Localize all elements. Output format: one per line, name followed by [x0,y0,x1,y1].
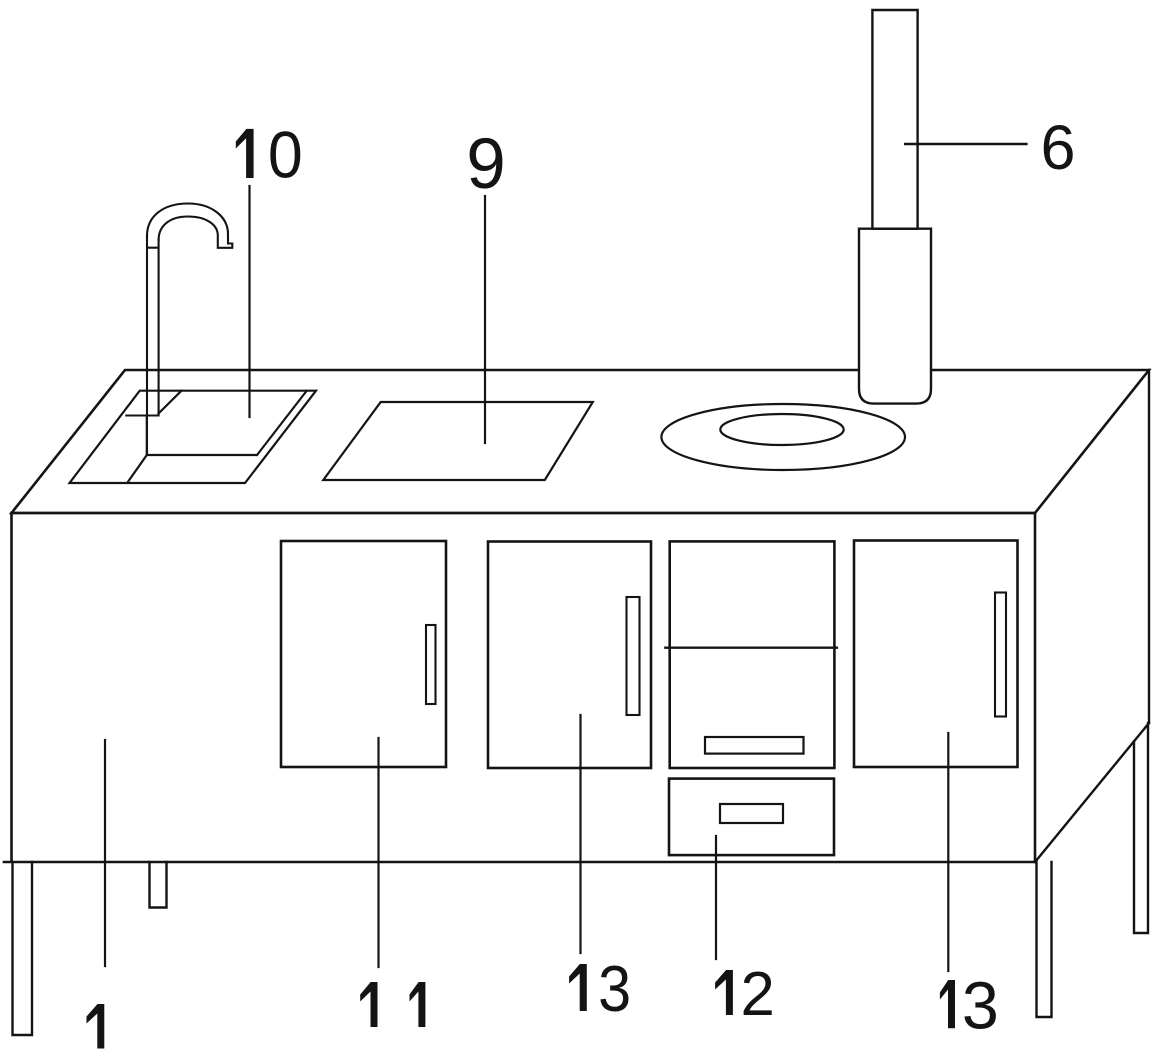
svg-text:9: 9 [466,125,506,204]
svg-text:6: 6 [1040,113,1075,183]
svg-text:0: 0 [268,118,303,192]
svg-text:3: 3 [598,954,631,1026]
svg-text:3: 3 [962,969,999,1043]
svg-text:2: 2 [741,960,775,1029]
